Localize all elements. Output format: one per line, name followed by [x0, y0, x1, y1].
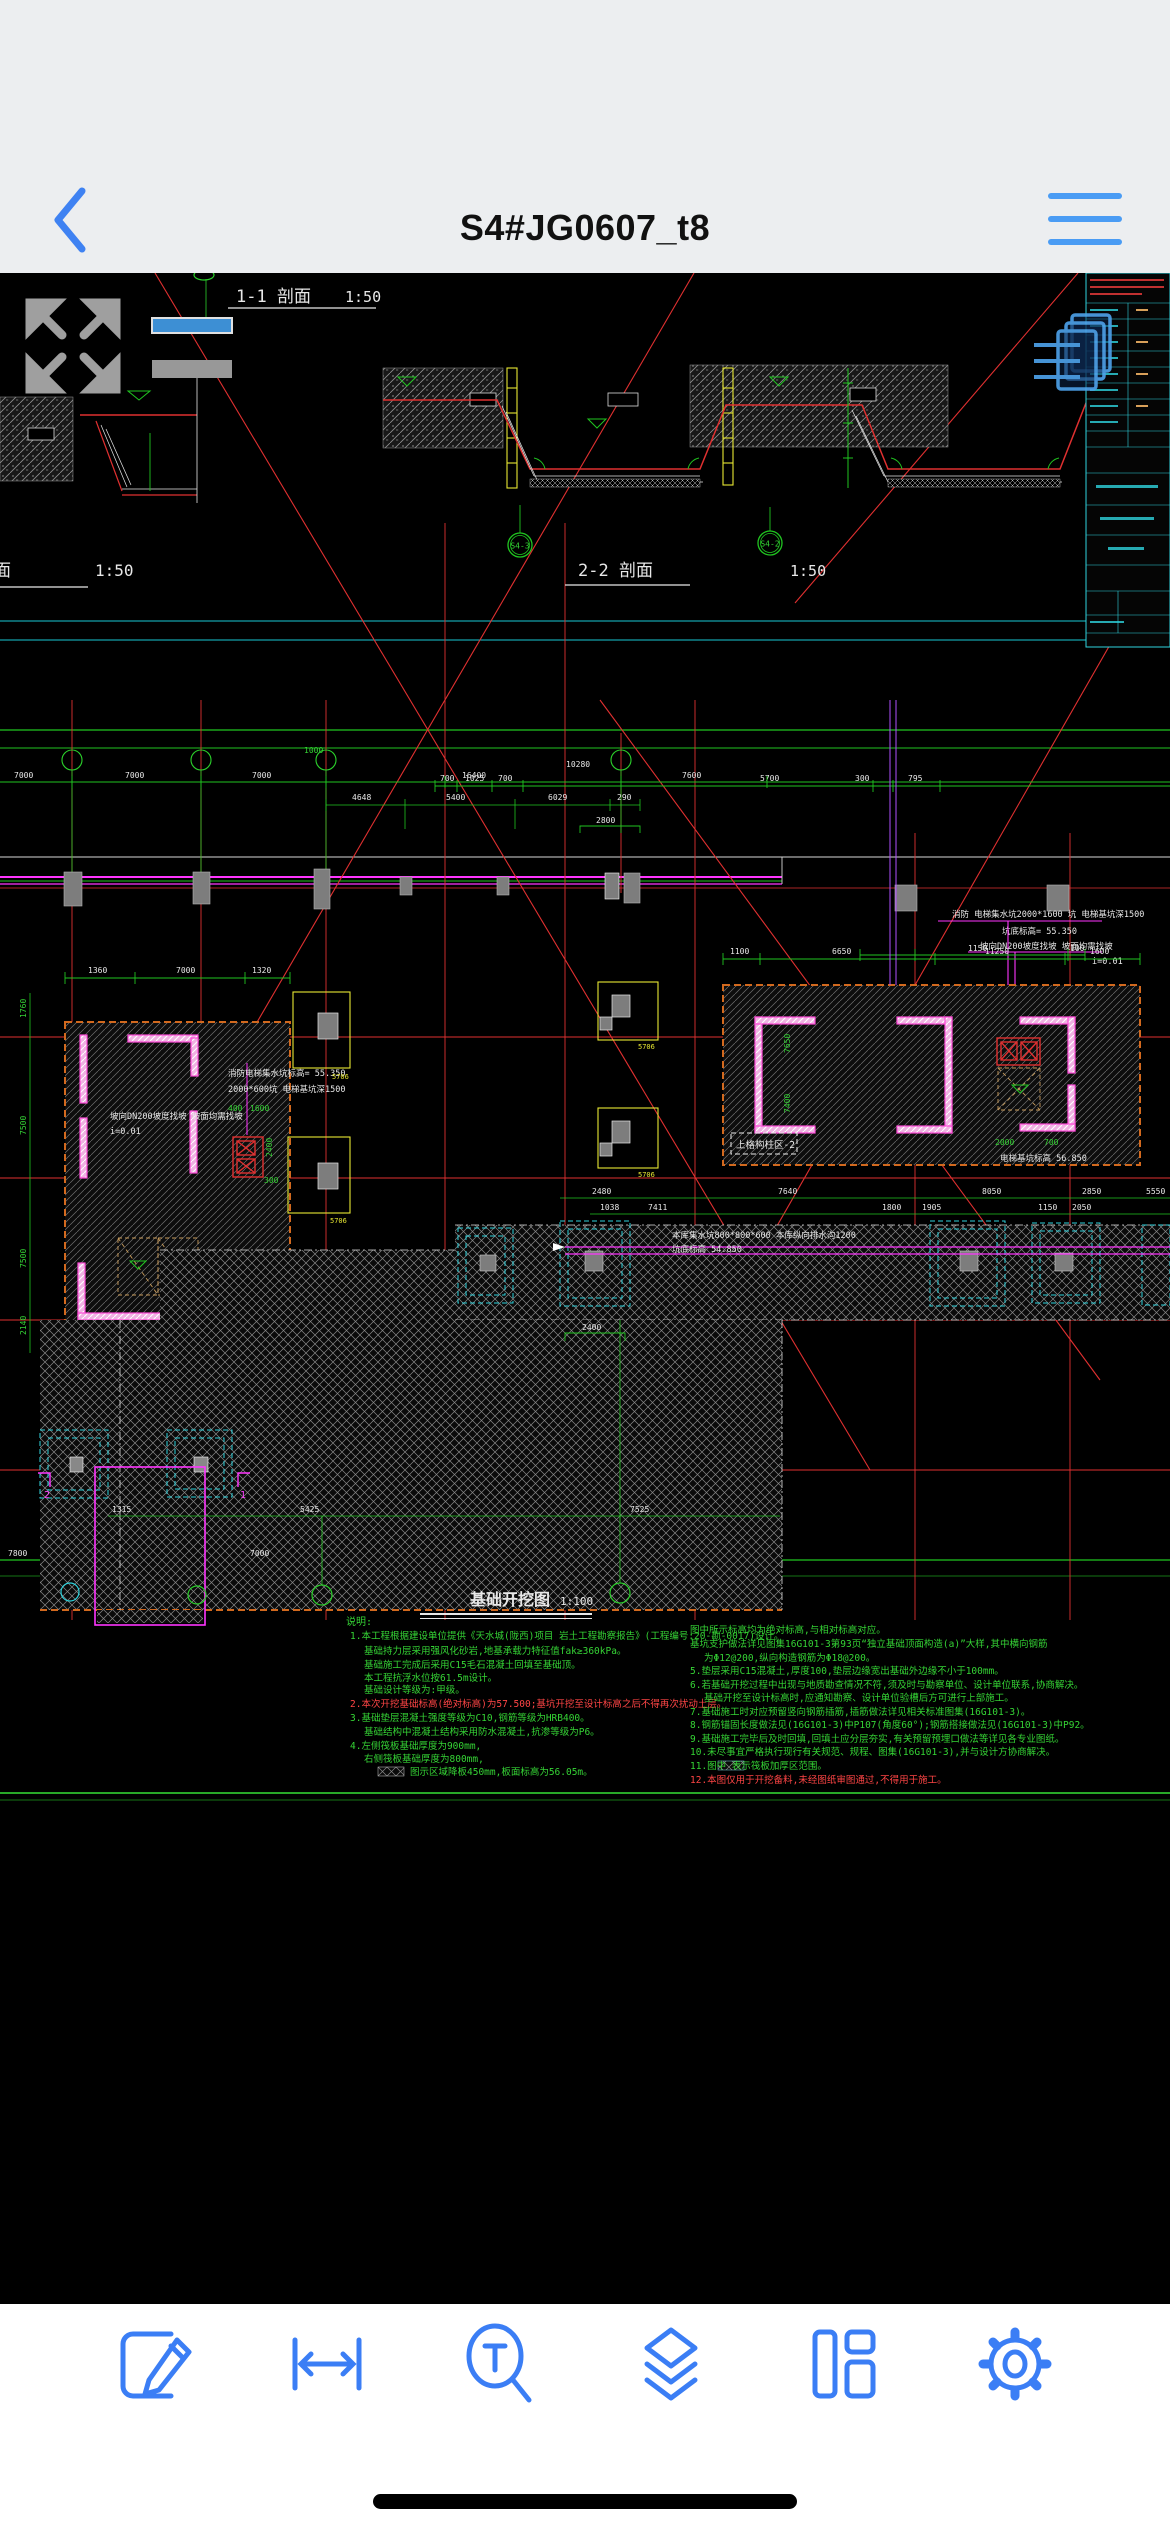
svg-text:5400: 5400: [446, 793, 465, 802]
right-pit: 7650 7400 2000 700 上格构柱区-2 电梯基坑标高 56.850…: [723, 947, 1140, 1165]
note-line: 9.基础施工完毕后及时回填,回填土应分层夯实,有关预留预埋口做法等详见各专业图纸…: [690, 1733, 1064, 1745]
note-line: 6.若基础开挖过程中出现与地质勘查情况不符,须及时与勘察单位、设计单位联系,协商…: [690, 1679, 1083, 1691]
grid-bubble-s4-2: S4-2: [758, 507, 782, 555]
plan-columns: [64, 869, 1069, 911]
svg-text:7000: 7000: [250, 1549, 269, 1558]
measure-icon: [295, 2340, 359, 2388]
svg-text:2800: 2800: [596, 816, 615, 825]
svg-text:1600: 1600: [250, 1104, 269, 1113]
svg-text:4648: 4648: [352, 793, 371, 802]
svg-text:6029: 6029: [548, 793, 567, 802]
svg-text:11250: 11250: [985, 947, 1009, 956]
note-line: 为Φ12@200,纵向构造钢筋为Φ18@200。: [704, 1652, 875, 1664]
svg-text:16400: 16400: [462, 771, 486, 780]
svg-text:1038: 1038: [600, 1203, 619, 1212]
svg-text:1315: 1315: [112, 1505, 131, 1514]
note-line: 基础持力层采用强风化砂岩,地基承载力特征值fak≥360kPa。: [364, 1645, 626, 1657]
note-line: 4.左侧筏板基础厚度为900mm,: [350, 1740, 481, 1752]
strip-footing-band: 本库集水坑800*800*600 本库纵向排水沟1200 坑底标高 54.850…: [160, 1187, 1170, 1320]
svg-text:6650: 6650: [832, 947, 851, 956]
svg-text:1600: 1600: [1090, 947, 1109, 956]
note-line: 基础施工完成后采用C15毛石混凝土回填至基础顶。: [364, 1659, 581, 1671]
cad-viewport[interactable]: 1-1 剖面 1:50: [0, 273, 1170, 2304]
raft-slab: 2 1 1315 5425 7525 2400 7800 7000: [8, 1320, 782, 1625]
svg-text:5550: 5550: [1146, 1187, 1165, 1196]
svg-text:2480: 2480: [592, 1187, 611, 1196]
svg-text:2850: 2850: [1082, 1187, 1101, 1196]
svg-text:2140: 2140: [19, 1316, 28, 1335]
svg-text:1:50: 1:50: [345, 288, 381, 306]
svg-text:2050: 2050: [1072, 1203, 1091, 1212]
note-line: 图中所示标高均为绝对标高,与相对标高对应。: [690, 1624, 886, 1636]
svg-text:7000: 7000: [252, 771, 271, 780]
svg-text:1800: 1800: [882, 1203, 901, 1212]
note-line: 2.本次开挖基础标高(绝对标高)为57.500;基坑开挖至设计标高之后不得再次扰…: [350, 1698, 726, 1710]
home-indicator[interactable]: [373, 2494, 797, 2509]
note-line: 基础结构中混凝土结构采用防水混凝土,抗渗等级为P6。: [364, 1726, 600, 1738]
document-title: S4#JG0607_t8: [0, 207, 1170, 249]
pencil-square-icon: [123, 2334, 189, 2396]
general-notes: 说明: 1.本工程根据建设单位提供《天水城(陇西)项目 岩土工程勘察报告》(工程…: [346, 1615, 1090, 1786]
annotate-button[interactable]: [109, 2318, 201, 2410]
svg-text:2000*600坑 电梯基坑深1500: 2000*600坑 电梯基坑深1500: [228, 1084, 346, 1095]
svg-text:5706: 5706: [638, 1043, 655, 1051]
svg-text:2: 2: [44, 1490, 50, 1501]
svg-text:5425: 5425: [300, 1505, 319, 1514]
navigation-bar: S4#JG0607_t8: [0, 0, 1170, 273]
svg-text:本库集水坑800*800*600 本库纵向排水沟1200: 本库集水坑800*800*600 本库纵向排水沟1200: [672, 1230, 856, 1241]
svg-text:i=0.01: i=0.01: [110, 1127, 141, 1137]
note-line: 本工程抗浮水位按61.5m设计。: [364, 1672, 497, 1684]
svg-text:1:100: 1:100: [560, 1595, 593, 1608]
svg-text:7000: 7000: [14, 771, 33, 780]
svg-text:7650: 7650: [783, 1034, 792, 1053]
svg-text:1360: 1360: [88, 966, 107, 975]
svg-text:2400: 2400: [265, 1138, 274, 1157]
svg-text:7800: 7800: [8, 1549, 27, 1558]
svg-text:290: 290: [617, 793, 632, 802]
note-line: 图示区域降板450mm,板面标高为56.05m。: [410, 1766, 593, 1778]
svg-text:S4-2: S4-2: [760, 540, 779, 549]
note-line: 3.基础垫层混凝土强度等级为C10,钢筋等级为HRB400。: [350, 1712, 590, 1724]
notes-title: 说明:: [346, 1615, 372, 1628]
svg-text:1000: 1000: [304, 746, 323, 755]
svg-text:7525: 7525: [630, 1505, 649, 1514]
svg-text:7500: 7500: [19, 1249, 28, 1268]
hamburger-icon: [1048, 193, 1122, 199]
section-left-partial: 面: [0, 561, 11, 581]
svg-text:1760: 1760: [19, 999, 28, 1018]
note-line: 基坑支护做法详见图集16G101-3第93页“独立基础顶面构造(a)”大样,其中…: [690, 1638, 1048, 1650]
svg-text:消防电梯集水坑标高= 55.350: 消防电梯集水坑标高= 55.350: [228, 1068, 345, 1079]
note-line: 8.钢筋锚固长度做法见(16G101-3)中P107(角度60°);钢筋搭接做法…: [690, 1719, 1090, 1731]
measure-button[interactable]: [281, 2318, 373, 2410]
layouts-button[interactable]: [797, 2318, 889, 2410]
svg-text:400: 400: [228, 1104, 243, 1113]
svg-text:1150: 1150: [1038, 1203, 1057, 1212]
leader-lines: [890, 700, 896, 985]
svg-text:5706: 5706: [332, 1073, 349, 1081]
svg-text:8050: 8050: [982, 1187, 1001, 1196]
svg-text:1320: 1320: [252, 966, 271, 975]
svg-text:100: 100: [1070, 944, 1085, 953]
app-screen: S4#JG0607_t8: [0, 0, 1170, 2532]
svg-text:1: 1: [240, 1490, 246, 1501]
svg-text:坡向DN200坡度找坡 坡面均需找坡: 坡向DN200坡度找坡 坡面均需找坡: [110, 1111, 243, 1122]
sheets-button[interactable]: [1034, 315, 1110, 389]
note-line: 基础开挖至设计标高时,应通知勘察、设计单位验槽后方可进行上部施工。: [704, 1692, 1014, 1704]
svg-text:坑底标高= 55.350: 坑底标高= 55.350: [1002, 926, 1077, 937]
section-2-2: 700 1025 700 5700 300 795 S4-3 S4-2 2-2 …: [0, 365, 1170, 792]
svg-text:1:50: 1:50: [790, 562, 826, 580]
svg-text:7640: 7640: [778, 1187, 797, 1196]
find-text-button[interactable]: [453, 2318, 545, 2410]
svg-text:1905: 1905: [922, 1203, 941, 1212]
layers-icon: [647, 2330, 695, 2398]
settings-button[interactable]: [969, 2318, 1061, 2410]
svg-text:7411: 7411: [648, 1203, 667, 1212]
note-line: 右侧筏板基础厚度为800mm,: [364, 1753, 484, 1765]
svg-text:坑底标高 54.850: 坑底标高 54.850: [672, 1244, 742, 1255]
svg-text:上格构柱区-2: 上格构柱区-2: [736, 1139, 795, 1151]
svg-text:S4-3: S4-3: [510, 542, 529, 551]
svg-text:7000: 7000: [176, 966, 195, 975]
menu-button[interactable]: [1048, 193, 1122, 245]
section-1-1-title: 1-1 剖面: [236, 287, 311, 307]
svg-text:i=0.01: i=0.01: [1092, 957, 1123, 967]
svg-text:1:50: 1:50: [95, 561, 134, 580]
svg-text:电梯基坑标高 56.850: 电梯基坑标高 56.850: [1000, 1153, 1087, 1164]
layout-icon: [815, 2332, 873, 2396]
bottom-toolbar: [0, 2304, 1170, 2532]
svg-text:7500: 7500: [19, 1116, 28, 1135]
section-2-2-title: 2-2 剖面: [578, 561, 653, 581]
scale-bar-gray: [152, 360, 232, 378]
svg-text:7600: 7600: [682, 771, 701, 780]
note-line: 10.未尽事宜严格执行现行有关规范、规程、图集(16G101-3),并与设计方协…: [690, 1746, 1055, 1758]
svg-text:2400: 2400: [582, 1323, 601, 1332]
svg-text:10280: 10280: [566, 760, 590, 769]
svg-text:700: 700: [1044, 1138, 1059, 1147]
svg-text:300: 300: [264, 1176, 279, 1185]
svg-text:7400: 7400: [783, 1094, 792, 1113]
scale-bar-blue: [152, 318, 232, 333]
section-2-2-dims: 700 1025 700 5700 300 795: [435, 774, 1170, 792]
text-search-icon: [469, 2326, 529, 2400]
note-line: 基础设计等级为:甲级。: [364, 1684, 465, 1696]
grid-bubble-s4-3: S4-3: [508, 505, 532, 557]
plan-title: 基础开挖图: [469, 1590, 550, 1609]
svg-text:7000: 7000: [125, 771, 144, 780]
svg-text:2000: 2000: [995, 1138, 1014, 1147]
gear-icon: [983, 2332, 1047, 2396]
note-line: 7.基础施工时对应预留竖向钢筋插筋,插筋做法详见相关标准图集(16G101-3)…: [690, 1706, 1030, 1718]
svg-text:消防 电梯集水坑2000*1600 坑 电梯基坑深1500: 消防 电梯集水坑2000*1600 坑 电梯基坑深1500: [952, 909, 1144, 920]
note-line: 11.图中 表示筏板加厚区范围。: [690, 1760, 827, 1772]
svg-text:5706: 5706: [330, 1217, 347, 1225]
layers-button[interactable]: [625, 2318, 717, 2410]
svg-text:1100: 1100: [730, 947, 749, 956]
svg-text:5706: 5706: [638, 1171, 655, 1179]
note-line: 5.垫层采用C15混凝土,厚度100,垫层边缘宽出基础外边缘不小于100mm。: [690, 1665, 1004, 1677]
note-line: 12.本图仅用于开挖备料,未经图纸审图通过,不得用于施工。: [690, 1774, 947, 1786]
fit-to-screen-button[interactable]: [30, 303, 116, 389]
